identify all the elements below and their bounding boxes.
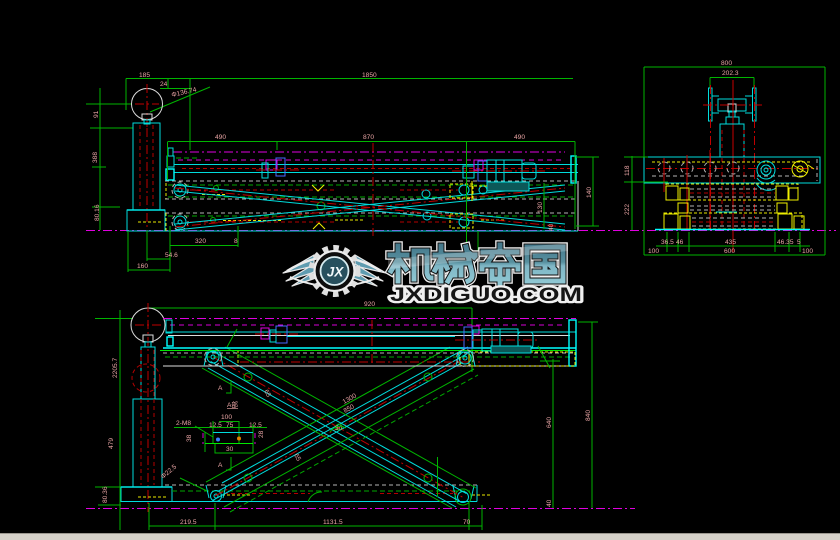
svg-text:840: 840	[585, 410, 592, 421]
svg-text:490: 490	[215, 134, 226, 141]
svg-text:80.16: 80.16	[94, 204, 101, 221]
svg-text:100: 100	[802, 248, 813, 255]
svg-text:38: 38	[186, 434, 193, 442]
svg-text:640: 640	[546, 417, 553, 428]
svg-text:JX: JX	[327, 265, 345, 280]
svg-text:160: 160	[137, 263, 148, 270]
svg-text:36.5: 36.5	[661, 239, 674, 246]
svg-text:870: 870	[363, 134, 374, 141]
svg-text:46: 46	[676, 239, 684, 246]
svg-text:185: 185	[139, 72, 150, 79]
svg-text:2205.7: 2205.7	[112, 357, 119, 378]
svg-text:140: 140	[586, 187, 593, 198]
svg-text:8: 8	[234, 238, 238, 245]
svg-text:219.5: 219.5	[180, 519, 197, 526]
svg-text:2-M8: 2-M8	[176, 420, 191, 427]
svg-text:118: 118	[624, 165, 631, 176]
svg-text:435: 435	[725, 239, 736, 246]
svg-text:JXDIGUO.COM: JXDIGUO.COM	[390, 285, 582, 306]
svg-text:1131.5: 1131.5	[323, 519, 343, 526]
svg-text:80.36: 80.36	[102, 486, 109, 503]
svg-text:479: 479	[108, 438, 115, 449]
svg-text:202.3: 202.3	[722, 70, 739, 77]
svg-text:222: 222	[624, 204, 631, 215]
svg-text:1850: 1850	[362, 72, 377, 79]
svg-text:24: 24	[160, 81, 168, 88]
svg-text:600: 600	[724, 248, 735, 255]
svg-text:320: 320	[195, 238, 206, 245]
svg-text:40: 40	[546, 499, 553, 507]
svg-text:46.35: 46.35	[777, 239, 794, 246]
svg-text:800: 800	[721, 60, 732, 67]
svg-text:A: A	[218, 385, 223, 392]
svg-text:920: 920	[364, 301, 375, 308]
svg-text:54.6: 54.6	[165, 252, 178, 259]
svg-text:91: 91	[93, 110, 100, 118]
svg-text:A: A	[218, 462, 223, 469]
svg-text:490: 490	[514, 134, 525, 141]
svg-text:70: 70	[463, 519, 471, 526]
svg-text:5: 5	[797, 239, 801, 246]
svg-text:28: 28	[258, 430, 265, 438]
svg-text:40: 40	[548, 223, 555, 231]
svg-text:100: 100	[648, 248, 659, 255]
svg-text:130: 130	[537, 202, 544, 213]
svg-text:30: 30	[226, 446, 234, 453]
svg-text:100: 100	[221, 414, 232, 421]
svg-text:A部: A部	[227, 400, 238, 409]
svg-text:388: 388	[92, 152, 99, 163]
